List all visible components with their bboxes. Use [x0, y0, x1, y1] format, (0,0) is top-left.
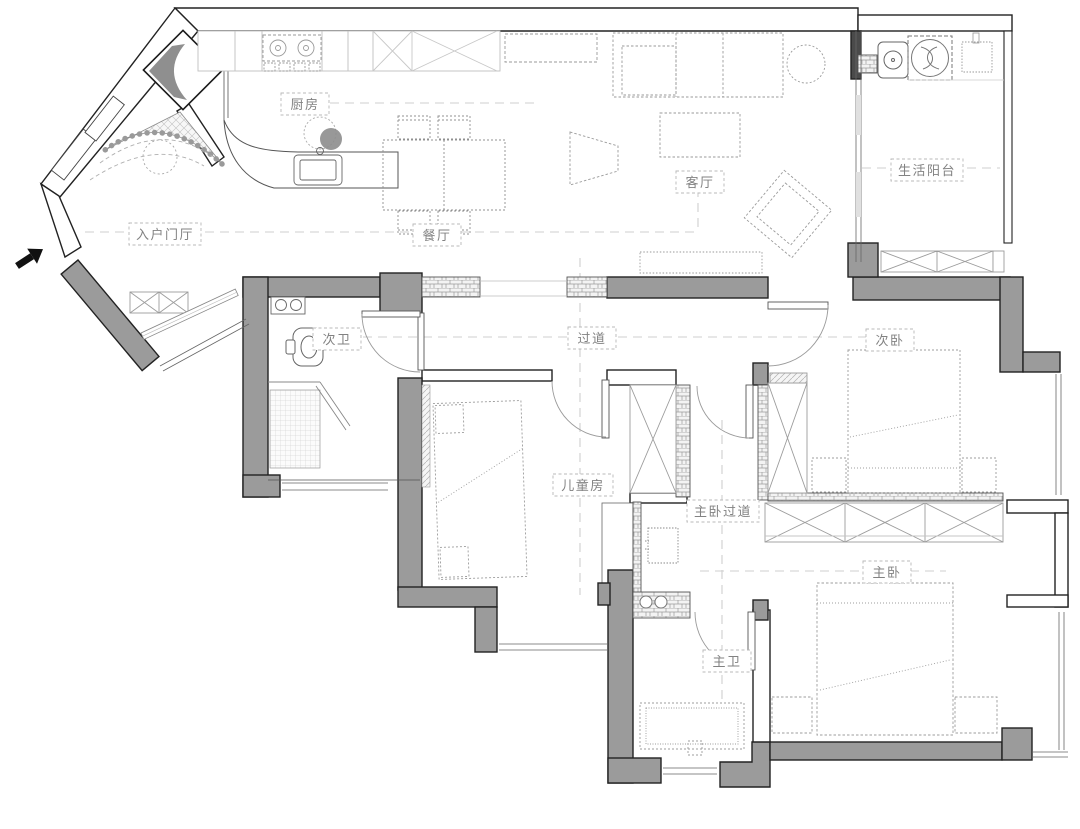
- shower-icon: [270, 390, 320, 468]
- nightstand-icon: [772, 697, 812, 733]
- bar-stool-icon: [320, 128, 342, 150]
- refrigerator-icon: [505, 34, 597, 62]
- second-bath-door: [362, 311, 420, 372]
- entry-door-panel: [61, 260, 159, 371]
- bathtub-icon: [640, 703, 744, 755]
- room-label-master-bath: 主卫: [703, 650, 751, 672]
- room-label-kitchen: 厨房: [281, 93, 329, 115]
- svg-text:次卧: 次卧: [875, 333, 904, 348]
- side-table-icon: [787, 45, 825, 83]
- svg-text:主卧过道: 主卧过道: [694, 504, 752, 519]
- balcony-cabinet: [881, 251, 1004, 272]
- svg-text:次卫: 次卫: [322, 332, 351, 347]
- svg-text:儿童房: 儿童房: [561, 478, 605, 493]
- svg-text:主卫: 主卫: [712, 654, 741, 669]
- washing-machine-icon: [908, 36, 952, 80]
- window-panes: [856, 95, 861, 217]
- master-bed-icon: [772, 583, 997, 735]
- second-bedroom-bed-icon: [812, 350, 996, 493]
- room-label-master-bedroom: 主卧: [863, 561, 911, 583]
- exterior-walls: [41, 8, 1068, 743]
- coffee-table-icon: [660, 113, 740, 157]
- kitchen-island-counter: [224, 120, 398, 188]
- lounge-chair-icon: [744, 170, 831, 257]
- second-bedroom-wardrobe-icon: [768, 373, 807, 493]
- room-label-second-bedroom: 次卧: [866, 329, 914, 351]
- floor-plan-canvas: 厨房 餐厅 客厅 生活阳台 入户门厅 次卫 过道 次卧: [0, 0, 1080, 829]
- bathroom-sink-icon: [271, 297, 305, 314]
- entry-direction-arrow-icon: [12, 242, 48, 274]
- axis-lines: [85, 103, 1000, 700]
- tv-console-icon: [640, 252, 762, 273]
- dryer-space: [962, 42, 992, 72]
- room-label-master-hallway: 主卧过道: [687, 500, 759, 522]
- kitchen-upper-cabinets: [198, 31, 500, 71]
- room-label-entry-foyer: 入户门厅: [129, 223, 201, 245]
- svg-text:过道: 过道: [577, 331, 606, 346]
- room-label-service-balcony: 生活阳台: [891, 159, 963, 181]
- room-label-living: 客厅: [676, 171, 724, 193]
- foyer-dashed-circle: [143, 140, 177, 174]
- master-hallway-door: [697, 385, 753, 438]
- svg-text:客厅: 客厅: [685, 175, 714, 190]
- room-label-hallway: 过道: [568, 327, 616, 349]
- svg-text:入户门厅: 入户门厅: [136, 227, 194, 242]
- floor-plan-drawing: 厨房 餐厅 客厅 生活阳台 入户门厅 次卫 过道 次卧: [0, 0, 1080, 829]
- hallway-appliance: [645, 528, 678, 563]
- dining-table-icon: [383, 116, 505, 234]
- kids-window-strip: [422, 385, 430, 487]
- nightstand-icon: [962, 458, 996, 492]
- kids-bed-icon: [433, 401, 527, 580]
- svg-text:餐厅: 餐厅: [422, 228, 451, 243]
- master-wardrobe-icon: [765, 503, 1003, 542]
- svg-text:厨房: 厨房: [290, 97, 319, 112]
- sofa-icon: [613, 33, 783, 97]
- tv-icon: [570, 132, 618, 185]
- room-label-second-bath: 次卫: [313, 328, 361, 350]
- second-bedroom-door: [768, 302, 828, 366]
- foyer-storage-cabinet: [130, 292, 188, 313]
- faucet-icon: [973, 33, 979, 43]
- svg-text:生活阳台: 生活阳台: [898, 163, 956, 178]
- room-label-dining: 餐厅: [413, 224, 461, 246]
- nightstand-icon: [955, 697, 997, 733]
- foyer-curtain-arcs: [90, 140, 212, 180]
- room-label-kids-room: 儿童房: [553, 474, 613, 496]
- nightstand-icon: [812, 458, 846, 492]
- kids-wardrobe-icon: [630, 385, 676, 493]
- laundry-sink-icon: [878, 42, 908, 78]
- svg-text:主卧: 主卧: [872, 565, 901, 580]
